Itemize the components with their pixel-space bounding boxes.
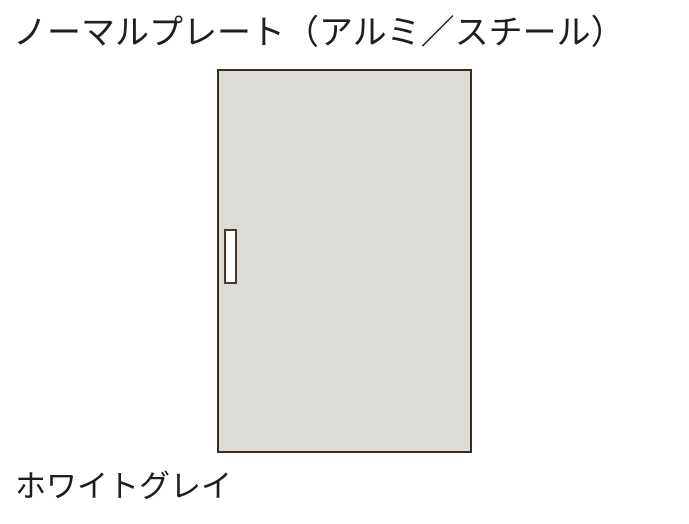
plate-handle-slot	[224, 229, 237, 284]
catalog-figure: ノーマルプレート（アルミ／スチール） ホワイトグレイ	[0, 0, 689, 524]
normal-plate-swatch	[217, 69, 472, 453]
color-name-label: ホワイトグレイ	[15, 470, 232, 504]
figure-title: ノーマルプレート（アルミ／スチール）	[13, 13, 625, 54]
